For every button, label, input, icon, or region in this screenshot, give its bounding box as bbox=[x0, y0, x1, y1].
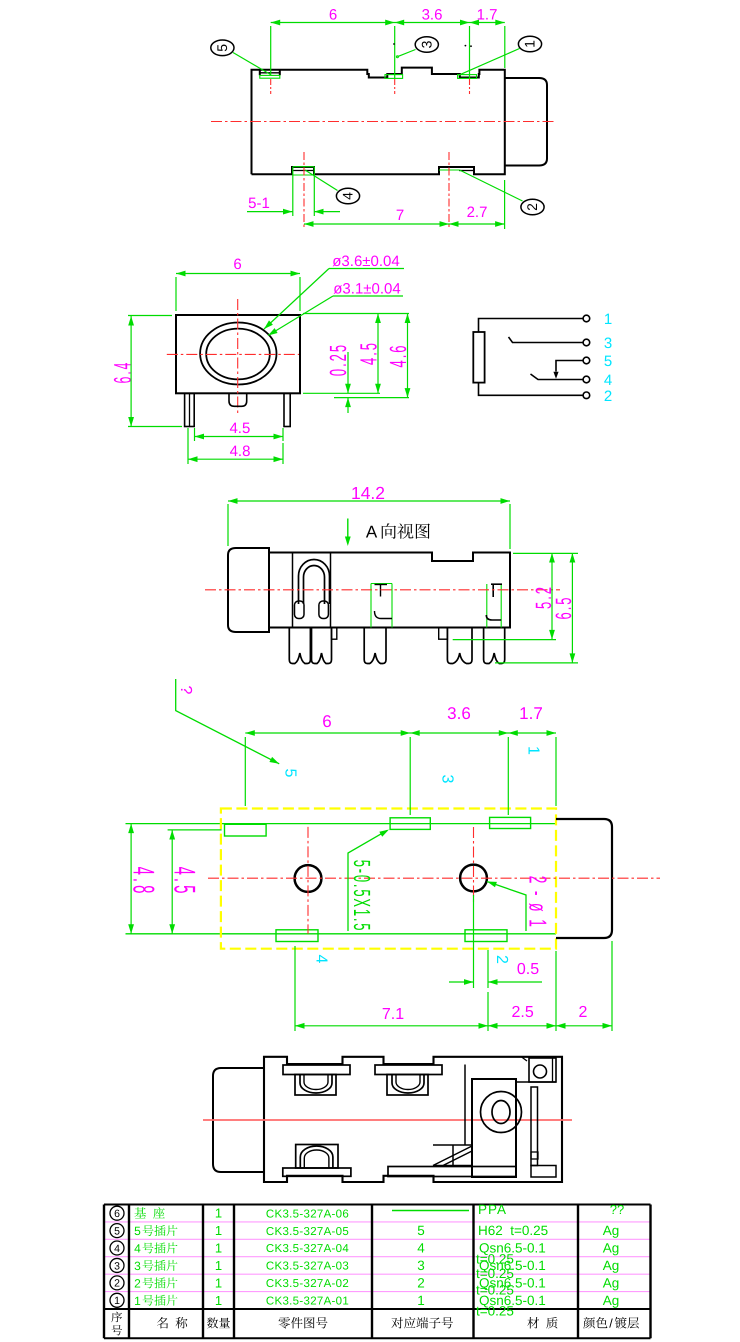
svg-text:Ag: Ag bbox=[603, 1241, 620, 1256]
svg-text:5: 5 bbox=[134, 1224, 141, 1238]
svg-text:1.7: 1.7 bbox=[519, 704, 543, 723]
svg-text:1: 1 bbox=[525, 746, 542, 755]
svg-text:2: 2 bbox=[134, 1276, 141, 1290]
svg-text:1: 1 bbox=[134, 1294, 141, 1308]
svg-text:5: 5 bbox=[214, 44, 230, 52]
svg-text:1: 1 bbox=[114, 1295, 120, 1307]
svg-text:CK3.5-327A-01: CK3.5-327A-01 bbox=[266, 1296, 349, 1308]
svg-text:0.25: 0.25 bbox=[324, 343, 351, 376]
svg-text:3: 3 bbox=[439, 775, 456, 784]
svg-text:Ag: Ag bbox=[603, 1223, 620, 1238]
svg-text:CK3.5-327A-05: CK3.5-327A-05 bbox=[266, 1226, 349, 1238]
svg-text:3: 3 bbox=[134, 1259, 141, 1273]
svg-text:1: 1 bbox=[215, 1275, 222, 1290]
svg-text:2: 2 bbox=[114, 1278, 120, 1290]
svg-text:1: 1 bbox=[215, 1206, 222, 1221]
svg-text:??: ?? bbox=[610, 1202, 624, 1217]
svg-text:2: 2 bbox=[417, 1275, 425, 1290]
svg-text:CK3.5-327A-03: CK3.5-327A-03 bbox=[266, 1261, 349, 1273]
svg-text:4: 4 bbox=[604, 372, 612, 389]
svg-text:2: 2 bbox=[524, 203, 540, 211]
svg-text:2: 2 bbox=[493, 955, 510, 964]
svg-text:6: 6 bbox=[322, 712, 331, 731]
svg-text:2: 2 bbox=[604, 388, 612, 405]
svg-text:4.8: 4.8 bbox=[230, 443, 251, 460]
svg-text:Ag: Ag bbox=[603, 1275, 620, 1290]
svg-text:PPA: PPA bbox=[478, 1202, 507, 1217]
svg-text:CK3.5-327A-06: CK3.5-327A-06 bbox=[266, 1208, 349, 1220]
svg-text:5-0.5X1.5: 5-0.5X1.5 bbox=[349, 860, 376, 933]
svg-text:6.4: 6.4 bbox=[108, 361, 137, 384]
svg-text:Ag: Ag bbox=[603, 1293, 620, 1308]
svg-text:4.8: 4.8 bbox=[125, 867, 159, 897]
svg-text:ø3.1±0.04: ø3.1±0.04 bbox=[333, 281, 400, 298]
svg-text:t=0.25: t=0.25 bbox=[476, 1283, 514, 1298]
svg-text:3: 3 bbox=[417, 1258, 425, 1273]
svg-text:0.5: 0.5 bbox=[517, 961, 539, 978]
svg-text:CK3.5-327A-02: CK3.5-327A-02 bbox=[266, 1278, 349, 1290]
svg-text:7.1: 7.1 bbox=[382, 1006, 404, 1023]
svg-text:A: A bbox=[366, 523, 378, 542]
svg-text:5: 5 bbox=[114, 1225, 120, 1237]
svg-text:14.2: 14.2 bbox=[351, 483, 385, 503]
svg-text:1: 1 bbox=[215, 1241, 222, 1256]
svg-text:1: 1 bbox=[215, 1293, 222, 1308]
svg-text:1.7: 1.7 bbox=[477, 7, 498, 24]
svg-text:2.7: 2.7 bbox=[467, 204, 488, 221]
svg-text:ø3.6±0.04: ø3.6±0.04 bbox=[332, 253, 399, 270]
svg-text:6: 6 bbox=[114, 1208, 120, 1220]
svg-text:3: 3 bbox=[418, 40, 434, 48]
svg-text:CK3.5-327A-04: CK3.5-327A-04 bbox=[266, 1243, 349, 1255]
svg-text:7: 7 bbox=[396, 207, 404, 224]
svg-text:?: ? bbox=[177, 686, 194, 695]
svg-text:5: 5 bbox=[417, 1223, 425, 1238]
svg-text:4: 4 bbox=[340, 192, 356, 200]
svg-text:2.5: 2.5 bbox=[511, 1004, 533, 1021]
svg-text:t=0.25: t=0.25 bbox=[476, 1252, 514, 1267]
svg-text:3.6: 3.6 bbox=[447, 704, 471, 723]
svg-text:6: 6 bbox=[233, 256, 241, 273]
svg-text:t=0.25: t=0.25 bbox=[476, 1304, 514, 1319]
svg-text:3: 3 bbox=[114, 1260, 120, 1272]
svg-text:2: 2 bbox=[579, 1004, 588, 1021]
svg-text:4: 4 bbox=[313, 955, 330, 964]
svg-text:5: 5 bbox=[604, 353, 612, 370]
svg-text:3.6: 3.6 bbox=[422, 7, 443, 24]
svg-text:/: / bbox=[609, 1317, 613, 1331]
svg-text:2-ø1: 2-ø1 bbox=[524, 876, 552, 935]
svg-text:Ag: Ag bbox=[603, 1258, 620, 1273]
svg-text:4: 4 bbox=[134, 1242, 141, 1256]
svg-text:t=0.25: t=0.25 bbox=[476, 1266, 514, 1281]
svg-text:4.5: 4.5 bbox=[229, 420, 250, 437]
svg-text:6: 6 bbox=[329, 7, 337, 24]
svg-text:H62 t=0.25: H62 t=0.25 bbox=[478, 1223, 548, 1238]
svg-text:1: 1 bbox=[215, 1223, 222, 1238]
svg-text:5-1: 5-1 bbox=[248, 195, 270, 212]
svg-text:4: 4 bbox=[114, 1243, 120, 1255]
svg-text:1: 1 bbox=[522, 40, 538, 48]
svg-text:1: 1 bbox=[604, 311, 612, 328]
svg-text:3: 3 bbox=[604, 335, 612, 352]
svg-text:1: 1 bbox=[215, 1258, 222, 1273]
svg-text:4: 4 bbox=[417, 1241, 425, 1256]
svg-text:1: 1 bbox=[417, 1293, 425, 1308]
svg-text:5: 5 bbox=[282, 769, 299, 778]
